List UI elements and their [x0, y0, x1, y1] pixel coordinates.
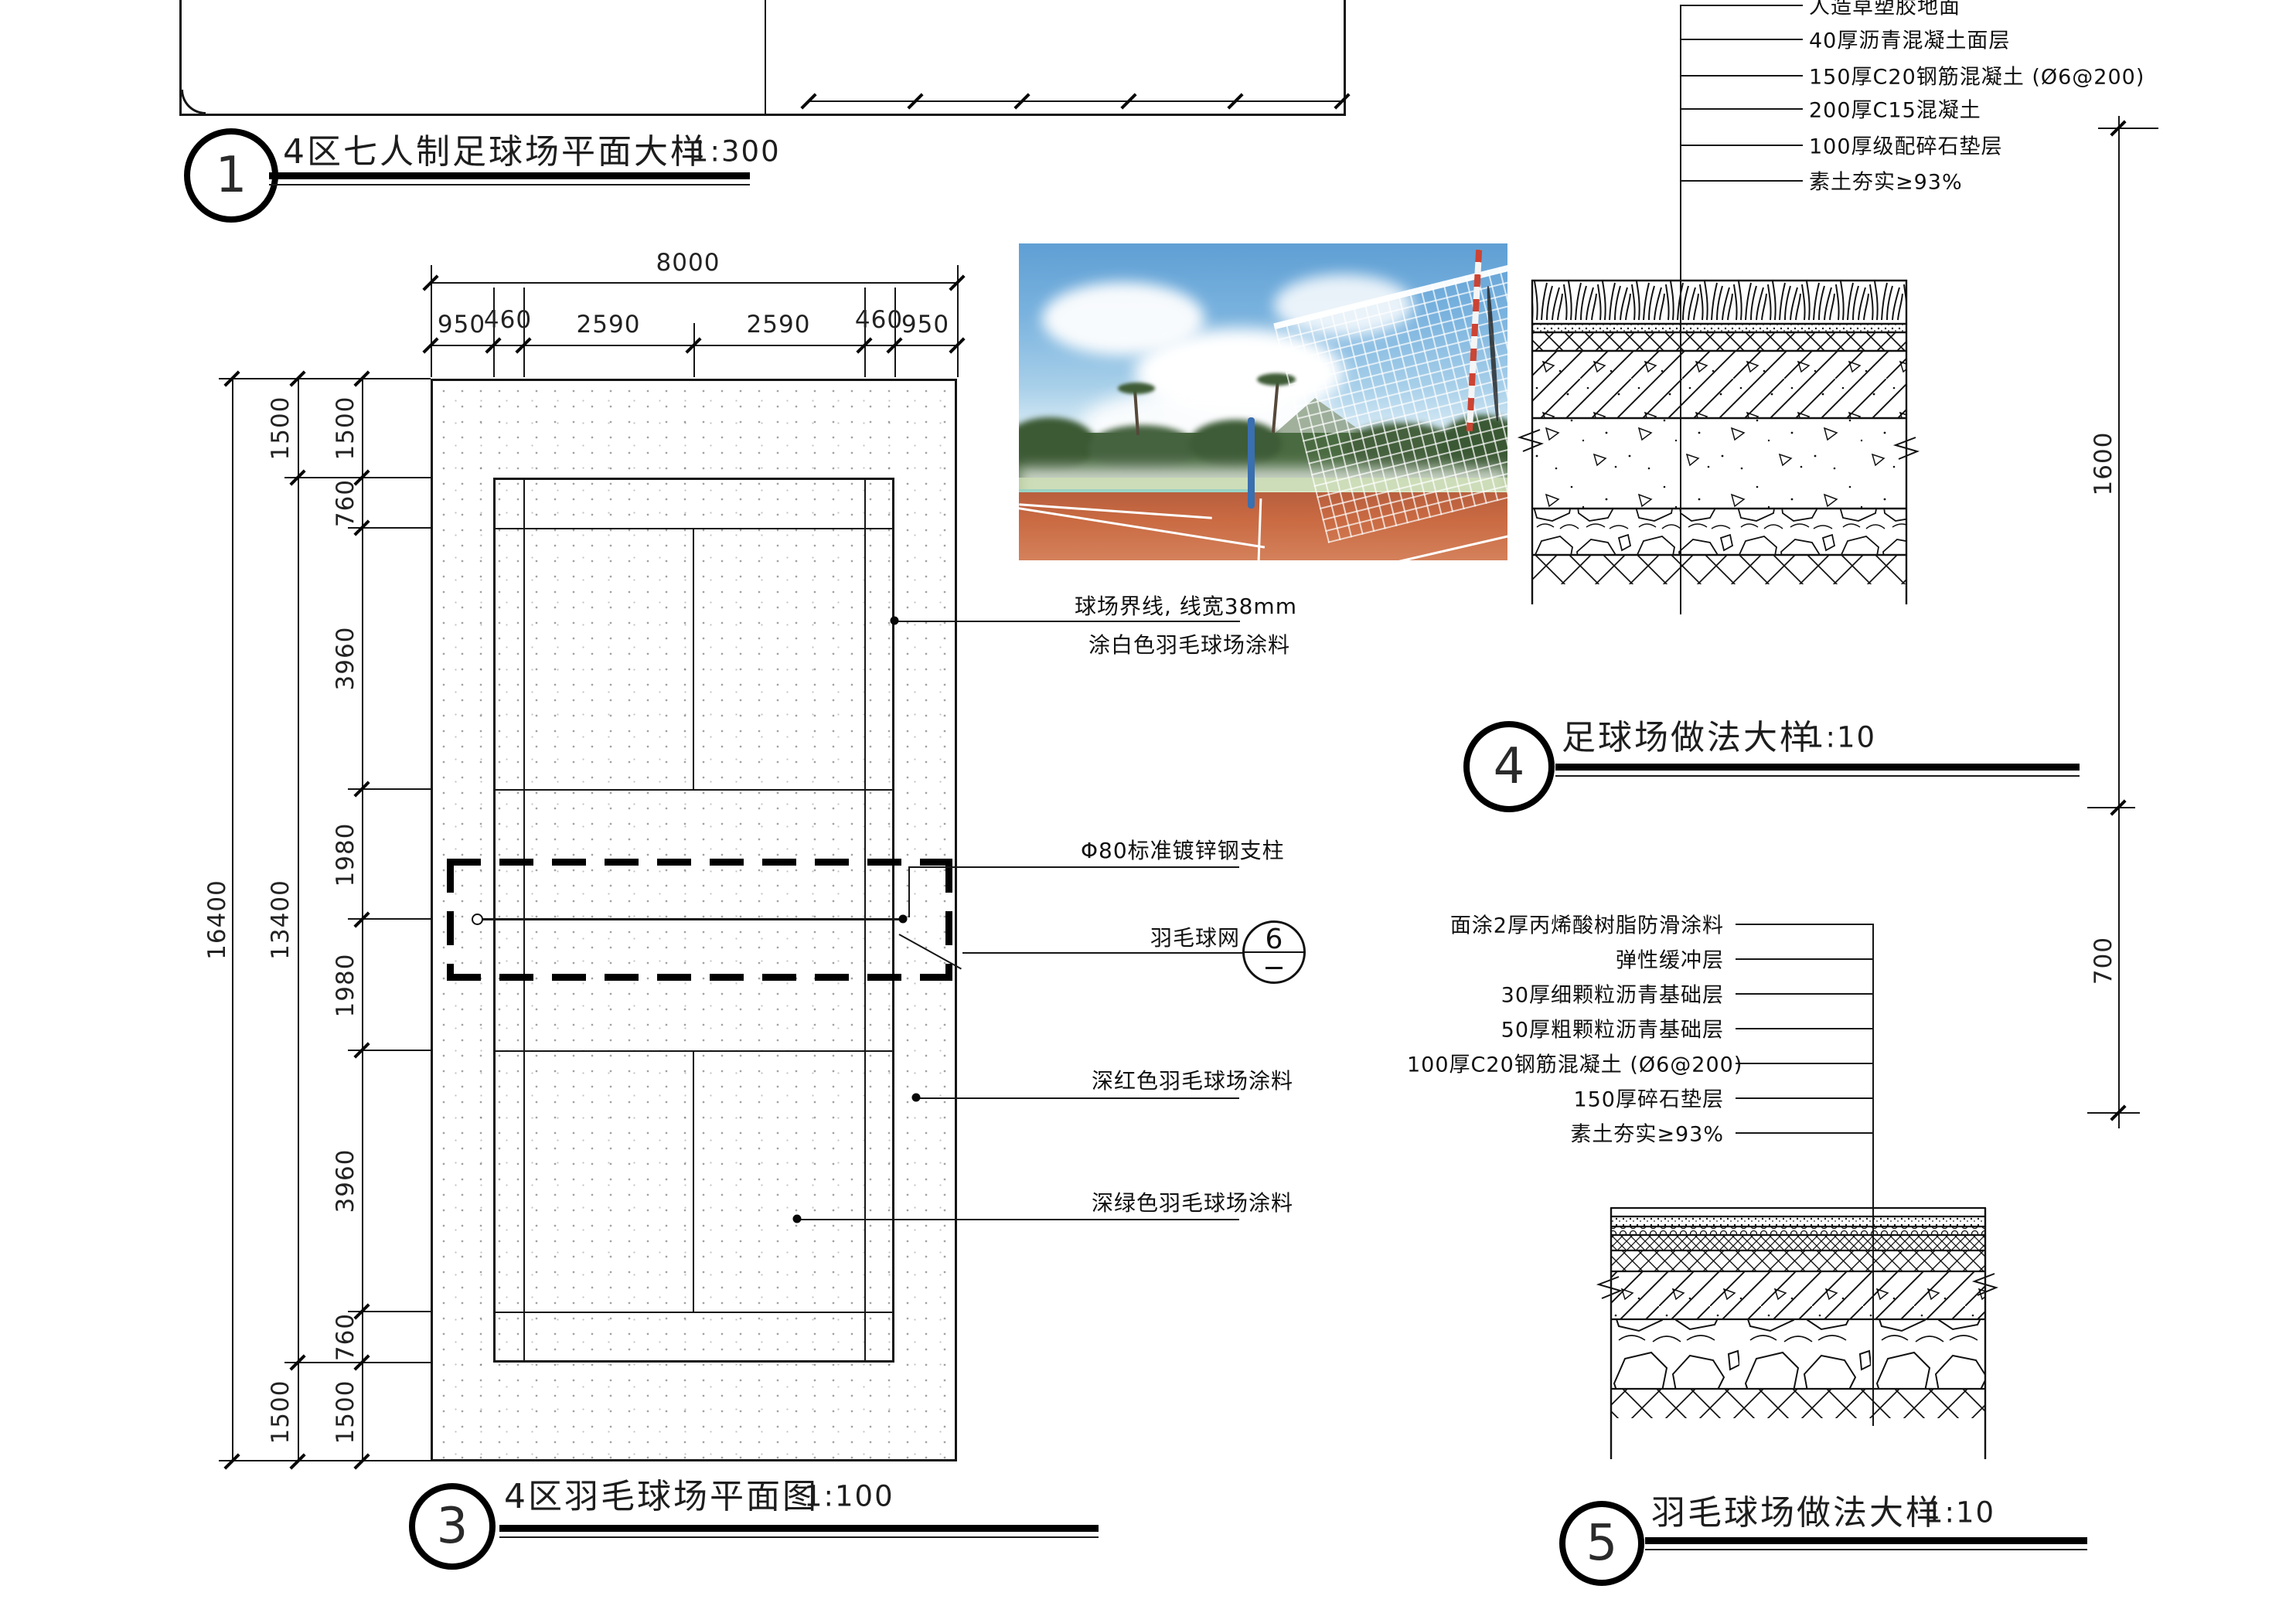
title-underline: [499, 1525, 1099, 1532]
dim-label: 1500: [267, 1380, 295, 1444]
dim-label: 950: [438, 311, 485, 339]
detail-scale-4: 1:10: [1806, 721, 1876, 754]
leader-rung: [1680, 145, 1803, 146]
leader-rung: [1736, 1028, 1872, 1029]
net-zone-dashed-left: [447, 859, 454, 981]
dim-label: 16400: [203, 880, 231, 960]
leader-dot: [912, 1094, 921, 1102]
layer-compacted-soil: [1531, 555, 1907, 584]
leader-rung: [1736, 1097, 1872, 1099]
detail-scale-1: 1:300: [690, 135, 781, 168]
ext-line: [2087, 1112, 2140, 1114]
tree: [1088, 425, 1197, 471]
leader-dot: [793, 1215, 802, 1223]
title-underline: [269, 172, 750, 179]
dim-label: 1980: [332, 823, 359, 887]
dim-label: 1500: [332, 1380, 359, 1444]
net-line: [477, 918, 903, 920]
detail-title-5: 羽毛球场做法大样: [1651, 1485, 1942, 1534]
dim-line-overall: [431, 282, 957, 284]
layer-label: 150厚碎石垫层: [1407, 1083, 1724, 1113]
title-underline-thin: [1555, 775, 2080, 777]
layer-label: 人造草塑胶地面: [1809, 0, 1960, 20]
layer-fine-asphalt: [1610, 1235, 1986, 1250]
callout-red-coating: 深红色羽毛球场涂料: [1092, 1064, 1293, 1095]
layer-label: 100厚C20钢筋混凝土 (Ø6@200): [1407, 1048, 1724, 1078]
dim-label: 8000: [656, 249, 720, 277]
soccer-plan-divider: [765, 0, 766, 114]
layer-gravel: [1610, 1319, 1986, 1389]
leader-rung: [1736, 993, 1872, 995]
soccer-section-drawing: [1529, 277, 1909, 617]
title-underline-thin: [1645, 1549, 2087, 1550]
leader-rung: [1736, 1132, 1872, 1134]
leader-rung: [1736, 1063, 1872, 1064]
layer-label: 40厚沥青混凝土面层: [1809, 24, 2010, 54]
detail-number: 1: [216, 147, 247, 204]
dim-label: 2590: [577, 311, 641, 339]
court-photo: [1019, 243, 1507, 560]
layer-label: 100厚级配碎石垫层: [1809, 130, 2003, 160]
dim-label: 1980: [332, 954, 359, 1018]
layer-gravel: [1531, 509, 1907, 555]
ext-line: [693, 323, 695, 377]
title-underline-thin: [269, 184, 750, 185]
tree: [1189, 420, 1282, 468]
dim-label: 950: [901, 311, 949, 339]
layer-label: 素土夯实≥93%: [1809, 165, 1963, 196]
detail-number: 4: [1494, 738, 1525, 795]
layer-reinforced-concrete: [1531, 351, 1907, 418]
callout-green-coating: 深绿色羽毛球场涂料: [1092, 1186, 1293, 1217]
leader-line: [962, 952, 1244, 954]
layer-label: 30厚细颗粒沥青基础层: [1407, 978, 1724, 1009]
layer-label: 150厚C20钢筋混凝土 (Ø6@200): [1809, 60, 2144, 90]
detail-number: 3: [437, 1498, 468, 1555]
leader-line: [916, 1097, 1239, 1099]
dim-label: 460: [855, 306, 903, 334]
layer-label: 200厚C15混凝土: [1809, 94, 1981, 124]
soccer-plan-edge-left: [179, 0, 182, 116]
detail-title-1: 4区七人制足球场平面大样: [283, 124, 707, 173]
net-post-blue: [1248, 417, 1255, 509]
leader-rung: [1680, 75, 1803, 77]
net-zone-dashed-bottom: [447, 974, 952, 981]
ext-line: [219, 1460, 431, 1461]
layer-label: 50厚粗颗粒沥青基础层: [1407, 1013, 1724, 1043]
layer-turf: [1531, 281, 1907, 324]
soccer-plan-edge-bottom: [179, 114, 1346, 116]
court-center-line-top: [693, 528, 694, 789]
dim-line-13400: [298, 379, 299, 1461]
ext-line: [219, 378, 431, 379]
leader-line: [894, 621, 1240, 622]
dim-line-16400: [232, 379, 233, 1461]
detail-title-3: 4区羽毛球场平面图: [504, 1468, 819, 1518]
dim-label: 2590: [747, 311, 811, 339]
net-post-symbol-left: [472, 914, 483, 925]
layer-asphalt: [1531, 332, 1907, 351]
net-zone-dashed-top: [447, 859, 952, 866]
ext-line: [2098, 128, 2158, 129]
leader-rung: [1680, 180, 1803, 182]
drawing-sheet: 1 4区七人制足球场平面大样 1:300 8000 950 460 2590 2…: [0, 0, 2296, 1623]
callout-court-line: 球场界线, 线宽38mm: [1075, 590, 1297, 621]
detail-number: 5: [1586, 1515, 1618, 1572]
leader-rung: [1680, 108, 1803, 110]
callout-post: Φ80标准镀锌钢支柱: [1081, 834, 1285, 865]
layer-label: 素土夯实≥93%: [1407, 1118, 1724, 1148]
detail-bubble-5: 5: [1559, 1501, 1644, 1586]
leader-line: [908, 866, 1239, 868]
layer-compacted-soil: [1610, 1389, 1986, 1418]
leader-line: [797, 1219, 1239, 1220]
leader-rung: [1736, 958, 1872, 960]
layer-binder: [1531, 324, 1907, 332]
leader-rung: [1680, 5, 1803, 6]
detail-bubble-3: 3: [409, 1483, 496, 1570]
dim-label: 1500: [332, 396, 359, 461]
dim-label: 460: [484, 306, 532, 334]
dim-label: 700: [2090, 937, 2117, 985]
net-detail-bubble: 6: [1242, 920, 1306, 984]
title-underline: [1645, 1537, 2087, 1544]
dim-label: 3960: [332, 627, 359, 691]
layer-label: 面涂2厚丙烯酸树脂防滑涂料: [1407, 909, 1724, 939]
callout-net: 羽毛球网: [1150, 921, 1240, 952]
dim-line: [809, 100, 1344, 102]
layer-coarse-asphalt: [1610, 1250, 1986, 1271]
badminton-section-drawing: [1608, 1204, 1988, 1467]
detail-title-4: 足球场做法大样: [1562, 709, 1816, 759]
leader-stub: [908, 866, 910, 917]
court-service-line: [493, 789, 894, 791]
dim-label: 760: [332, 479, 359, 527]
layer-coating: [1610, 1216, 1986, 1227]
palm-fronds: [1118, 383, 1155, 394]
ext-line: [2087, 807, 2135, 808]
detail-scale-3: 1:100: [804, 1480, 894, 1513]
leader-dot: [899, 915, 908, 924]
bubble-dash: [1266, 967, 1283, 969]
detail-bubble-1: 1: [184, 128, 278, 223]
callout-court-coating: 涂白色羽毛球场涂料: [1088, 628, 1290, 659]
detail-bubble-4: 4: [1463, 721, 1555, 812]
layer-label: 弹性缓冲层: [1407, 944, 1724, 974]
court-center-line-bottom: [693, 1050, 694, 1312]
dim-label: 13400: [267, 880, 295, 960]
detail-scale-5: 1:10: [1925, 1496, 1995, 1529]
dim-label: 1500: [267, 396, 295, 461]
dim-line: [2118, 116, 2120, 1128]
layer-cushion: [1610, 1227, 1986, 1235]
dim-label: 760: [332, 1313, 359, 1361]
corner-fillet-arc: [181, 90, 206, 114]
layer-reinforced-concrete: [1610, 1271, 1986, 1319]
title-underline: [1555, 764, 2080, 771]
dim-label: 3960: [332, 1149, 359, 1213]
leader-rung: [1736, 924, 1872, 925]
leader-dot: [891, 617, 899, 625]
court-service-line: [493, 1312, 894, 1313]
bubble-number: 6: [1245, 924, 1303, 955]
dim-label: 1600: [2090, 432, 2117, 496]
leader-rung: [1680, 39, 1803, 40]
title-underline-thin: [499, 1536, 1099, 1538]
layer-concrete: [1531, 418, 1907, 509]
